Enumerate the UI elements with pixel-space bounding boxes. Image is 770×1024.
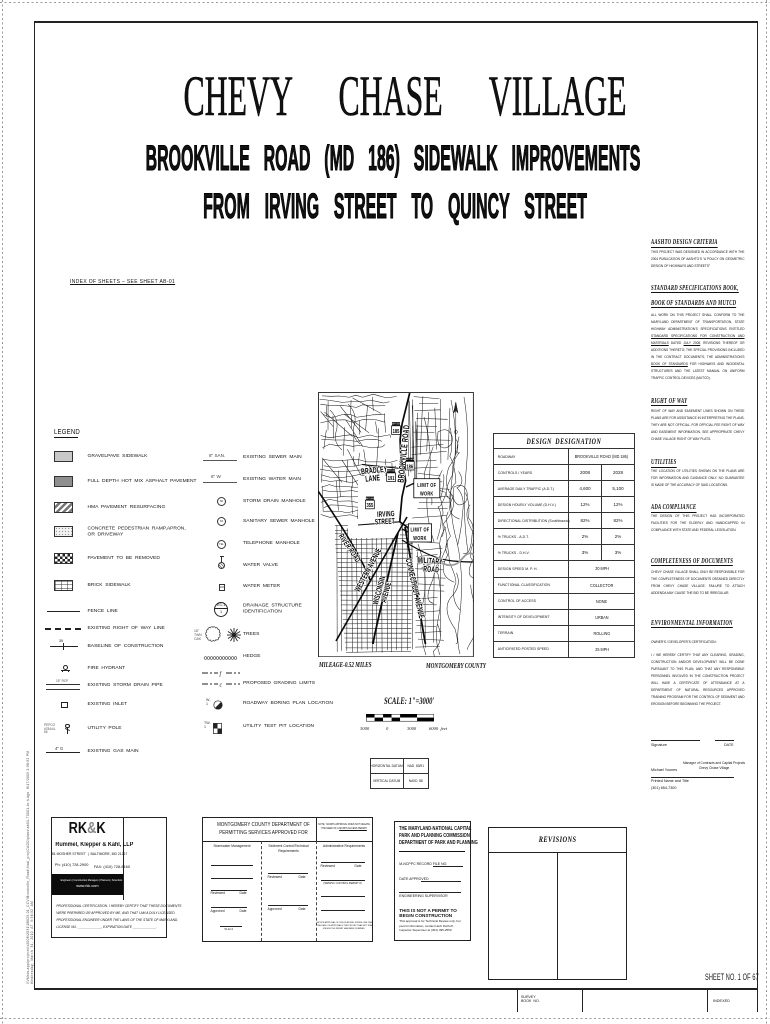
svg-text:STREET: STREET [375, 517, 396, 526]
svg-text:LIMIT OF: LIMIT OF [417, 482, 436, 489]
svg-text:MARYLAND: MARYLAND [386, 469, 397, 472]
svg-text:186: 186 [407, 463, 414, 470]
svg-text:LANE: LANE [365, 474, 381, 484]
svg-text:ROAD: ROAD [423, 565, 439, 574]
svg-text:MARYLAND: MARYLAND [391, 422, 402, 425]
svg-text:185: 185 [393, 428, 400, 435]
svg-text:WORK: WORK [413, 535, 427, 542]
svg-text:355: 355 [367, 502, 374, 509]
svg-text:MARYLAND: MARYLAND [365, 497, 376, 500]
svg-text:MARYLAND: MARYLAND [405, 458, 416, 461]
svg-text:c: c [220, 683, 223, 688]
svg-text:WORK: WORK [420, 491, 434, 498]
svg-text:191: 191 [388, 475, 395, 482]
svg-text:LIMIT OF: LIMIT OF [411, 527, 430, 534]
